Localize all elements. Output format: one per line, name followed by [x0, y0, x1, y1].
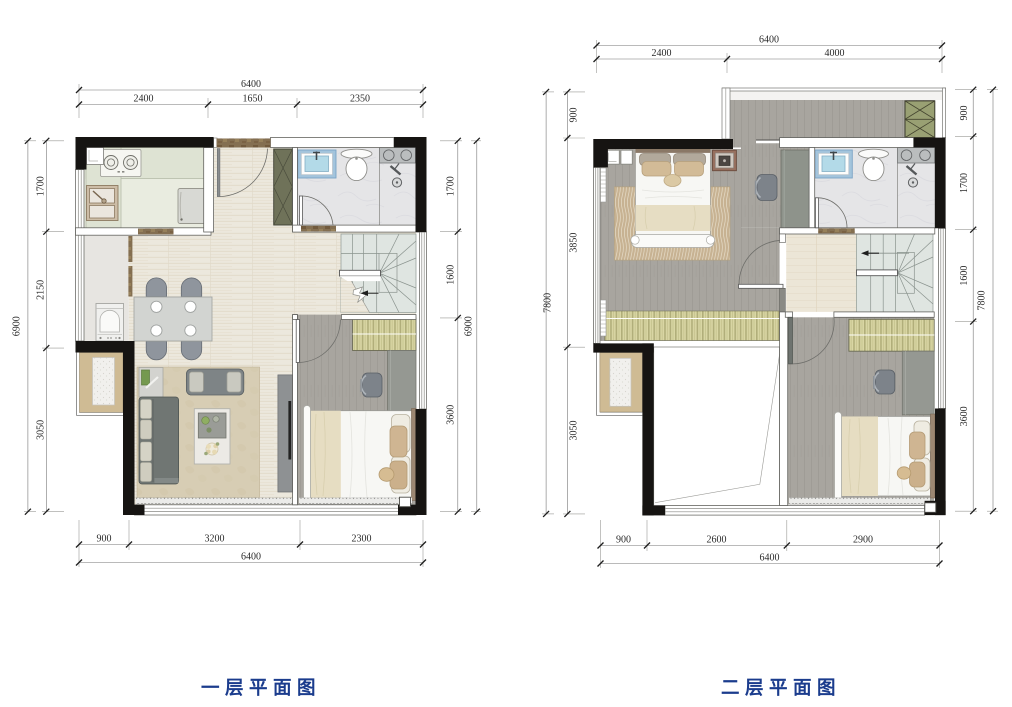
svg-text:6400: 6400 [241, 79, 261, 90]
svg-text:6900: 6900 [464, 316, 475, 336]
svg-text:900: 900 [569, 108, 580, 123]
svg-text:7800: 7800 [977, 291, 988, 311]
svg-text:二层平面图: 二层平面图 [721, 677, 841, 698]
svg-text:1700: 1700 [35, 176, 46, 196]
svg-text:2150: 2150 [35, 280, 46, 300]
svg-text:2400: 2400 [134, 94, 154, 105]
svg-text:3600: 3600 [959, 406, 970, 426]
svg-text:1700: 1700 [959, 173, 970, 193]
svg-text:2600: 2600 [707, 535, 727, 546]
svg-text:900: 900 [97, 534, 112, 545]
svg-text:3200: 3200 [205, 534, 225, 545]
svg-text:2350: 2350 [350, 94, 370, 105]
svg-text:3050: 3050 [569, 421, 580, 441]
svg-text:1650: 1650 [243, 94, 263, 105]
svg-text:3050: 3050 [35, 420, 46, 440]
svg-text:1700: 1700 [446, 176, 457, 196]
svg-text:6900: 6900 [12, 316, 23, 336]
svg-text:6400: 6400 [241, 552, 261, 563]
svg-text:3850: 3850 [569, 233, 580, 253]
svg-text:900: 900 [616, 535, 631, 546]
svg-text:7800: 7800 [543, 293, 554, 313]
svg-text:4000: 4000 [825, 48, 845, 59]
svg-text:6400: 6400 [759, 35, 779, 46]
svg-text:一层平面图: 一层平面图 [201, 677, 321, 698]
svg-text:1600: 1600 [959, 266, 970, 286]
svg-text:2400: 2400 [652, 48, 672, 59]
svg-text:1600: 1600 [446, 265, 457, 285]
svg-text:900: 900 [959, 106, 970, 121]
svg-text:2300: 2300 [352, 534, 372, 545]
svg-text:6400: 6400 [760, 553, 780, 564]
svg-text:2900: 2900 [853, 535, 873, 546]
svg-text:3600: 3600 [446, 405, 457, 425]
